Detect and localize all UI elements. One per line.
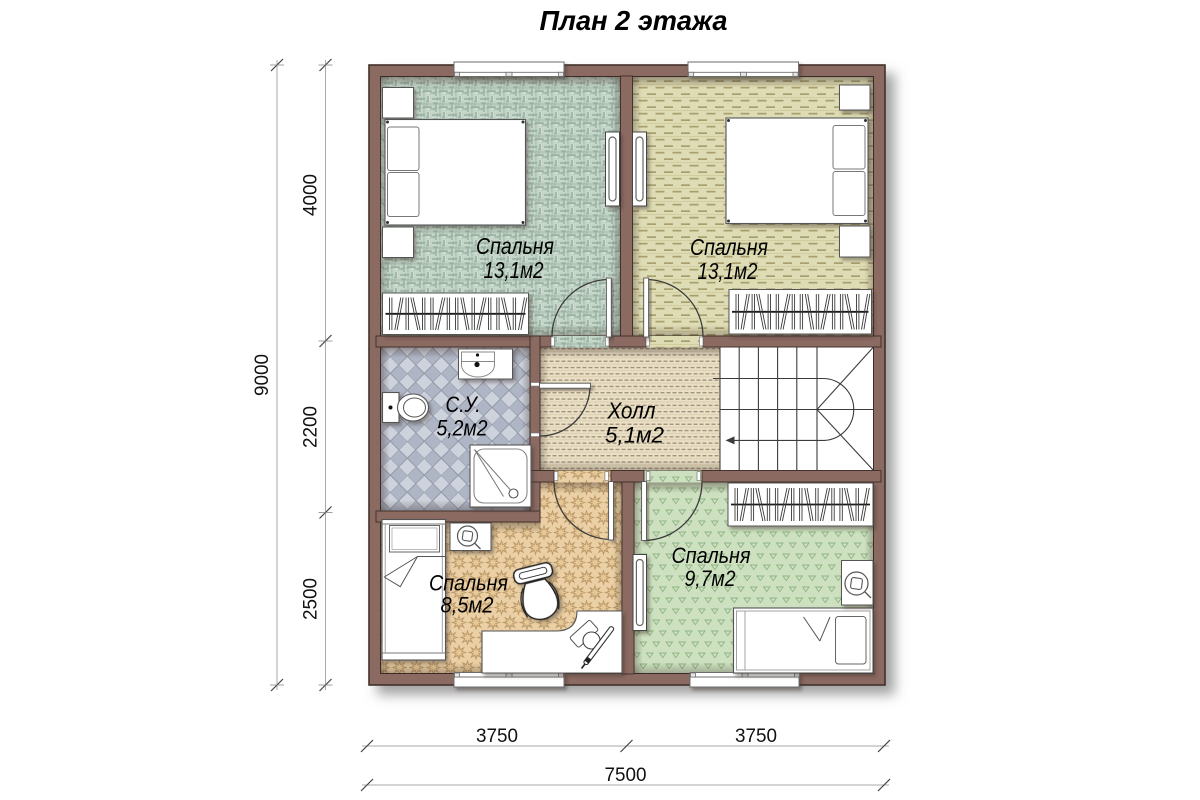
svg-text:Спальня: Спальня bbox=[690, 234, 768, 260]
svg-text:13,1м2: 13,1м2 bbox=[484, 257, 544, 283]
svg-text:3750: 3750 bbox=[476, 726, 518, 747]
svg-text:5,1м2: 5,1м2 bbox=[605, 423, 664, 448]
svg-text:Спальня: Спальня bbox=[476, 233, 554, 259]
svg-text:Холл: Холл bbox=[607, 398, 656, 424]
svg-text:8,5м2: 8,5м2 bbox=[441, 593, 494, 618]
svg-text:5,2м2: 5,2м2 bbox=[437, 416, 488, 441]
svg-text:С.У.: С.У. bbox=[446, 392, 481, 417]
svg-text:2200: 2200 bbox=[301, 406, 322, 448]
svg-text:4000: 4000 bbox=[301, 174, 322, 216]
svg-text:9,7м2: 9,7м2 bbox=[685, 566, 736, 591]
svg-text:Спальня: Спальня bbox=[672, 543, 751, 568]
svg-text:9000: 9000 bbox=[252, 354, 273, 396]
svg-text:3750: 3750 bbox=[735, 726, 777, 747]
svg-text:13,1м2: 13,1м2 bbox=[698, 258, 758, 284]
svg-text:7500: 7500 bbox=[605, 765, 647, 786]
svg-text:2500: 2500 bbox=[301, 578, 322, 620]
svg-text:План 2 этажа: План 2 этажа bbox=[540, 5, 728, 36]
